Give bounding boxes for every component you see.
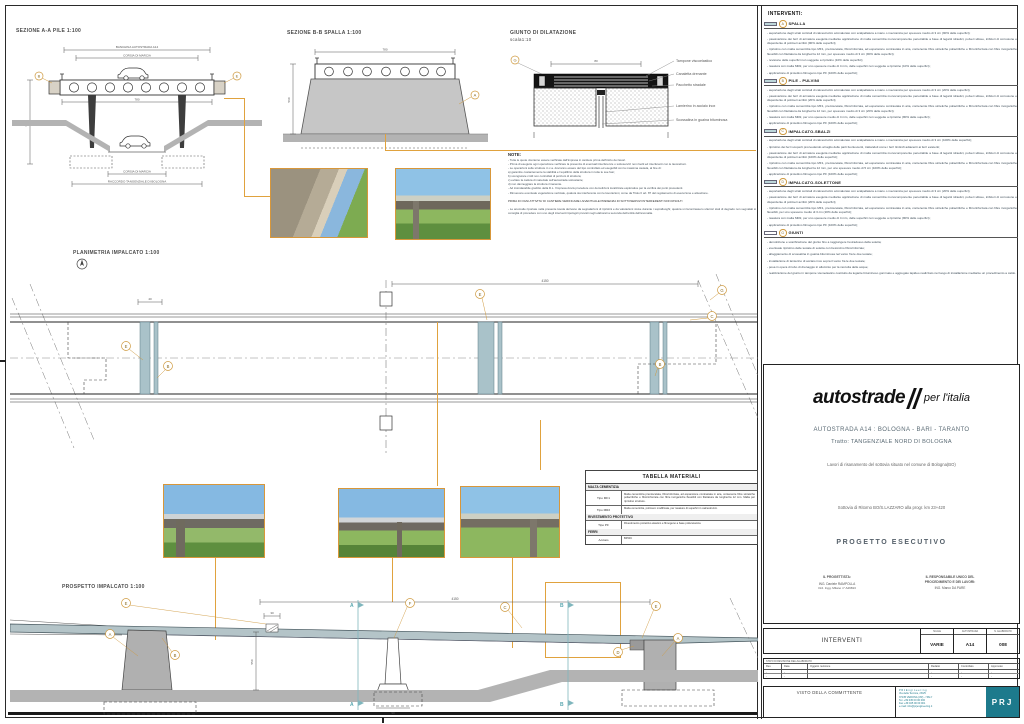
edge-tick-bottom (382, 717, 384, 723)
svg-text:D: D (616, 650, 619, 655)
giunto-label: Scossalina in guaina bituminosa (676, 118, 727, 122)
orange-leader (437, 322, 438, 486)
giunto-drawing: G 80 Tampone viscoelastico Can (506, 46, 756, 148)
giunto-scale: scala1:10 (510, 37, 532, 42)
bullet: - posa in opera di tubo di drenaggio in … (767, 265, 1017, 269)
sezione-bb-title: SEZIONE B-B SPALLA 1:100 (287, 30, 361, 36)
rup-name: ING. Marco DA PARE (895, 586, 1005, 590)
materials-rows: Tipo MF1 Malta cementizia premiscelata, … (586, 491, 757, 514)
orange-leader (224, 98, 244, 99)
materials-group-header: FERRI (586, 529, 757, 536)
material-type: Tipo MF1 (586, 491, 622, 505)
legend-swatch (764, 180, 777, 184)
works-description: Lavori di risanamento del sottovia situa… (764, 462, 1019, 467)
bullet: - rasatura con malta MR2, per uno spesso… (767, 64, 1017, 68)
orange-leader (540, 420, 541, 470)
material-desc: B450C (622, 536, 757, 544)
orange-leader (244, 98, 245, 196)
svg-text:B: B (167, 364, 170, 369)
bullet: - alloggiamento di scossalina in guaina … (767, 252, 1017, 256)
plan-callouts: E B E C B G (122, 286, 727, 379)
drawing-sheet: SEZIONE A-A PILE 1:100 BANCHINA AUTOSTRA… (0, 0, 1024, 724)
car-icon (118, 68, 148, 80)
scale-value: VARIE (921, 635, 953, 653)
interventi-section-spalla: A SPALLA - asportazione degli strati cor… (764, 20, 1018, 75)
giunto-label: Pacchetto stradale (676, 83, 706, 87)
table-row: Tipo PF Rivestimento protettivo elastico… (586, 521, 757, 529)
legend-swatch (764, 22, 777, 26)
materials-rows: Acciaio B450C (586, 536, 757, 544)
table-row: Tipo MR2 Malta cementizia, polimero modi… (586, 506, 757, 514)
giunto-label: Canaletta drenante (676, 72, 707, 76)
svg-text:G: G (513, 58, 516, 63)
bullet: - passivazione dei ferri di armatura ese… (767, 151, 1017, 160)
material-type: Tipo PF (586, 521, 622, 529)
legend-swatch (764, 129, 777, 133)
svg-text:G: G (720, 288, 723, 293)
photo-pier (413, 201, 420, 239)
dim-label: 560 (287, 97, 291, 102)
sheet-id-row: INTERVENTI SCALE VARIE AUTOSTRADA A14 N.… (763, 628, 1020, 654)
bullet: - ripristino con malta cementizia tipo M… (767, 104, 1017, 113)
dim-label: BANCHINA AUTOSTRADA A14 (116, 45, 159, 49)
svg-text:A: A (350, 702, 354, 708)
callout-letter: G (779, 229, 787, 237)
signature-row: VISTO DELLA COMMITTENTE P R J E n g i n … (763, 686, 1020, 718)
bullet: - asportazione degli strati corticali di… (767, 138, 1017, 142)
title-block: autostrade per l'italia AUTOSTRADA A14 :… (763, 364, 1020, 624)
planimetria-title: PLANIMETRIA IMPALCATO 1:100 (73, 250, 160, 256)
revision-rows: - - - - - - - - - - (764, 670, 1019, 678)
bullet: - applicazione di protettivo filmogeno t… (767, 121, 1017, 125)
dim-label: 80 (594, 59, 598, 63)
callout-letter: D (779, 178, 787, 186)
bullet: - realizzazione del giunto in tampone vi… (767, 271, 1017, 275)
revision-table: STATO DI REVISIONE DELL'ELABORATO Rev. D… (763, 658, 1020, 679)
material-desc: Malta cementizia, polimero modificata, p… (622, 506, 757, 514)
giunto-title: GIUNTO DI DILATAZIONE (510, 30, 576, 36)
dim-label: 780 (134, 98, 139, 102)
bullet: - passivazione dei ferri di armatura ese… (767, 195, 1017, 204)
photo-pier (397, 522, 402, 557)
dim-label: 90 (391, 711, 395, 715)
svg-text:B: B (174, 653, 177, 658)
photo-elevation-mid (338, 488, 445, 558)
orange-leader (385, 134, 386, 151)
section-title: IMPALCATO-SOLETTONE (789, 180, 842, 185)
section-title: IMPALCATO-SBALZI (789, 129, 831, 134)
svg-text:B: B (659, 362, 662, 367)
sheet-name: INTERVENTI (763, 628, 921, 654)
scale-cell: SCALE VARIE (921, 628, 954, 654)
note-block: NOTE: - Tutte le quote dovranno essere v… (508, 152, 756, 215)
svg-text:A: A (677, 636, 680, 641)
giunto-label: Tampone viscoelastico (676, 59, 712, 63)
note-footer: - Le anomalie riportate nella presente t… (508, 207, 756, 215)
photo-elevation-right (460, 486, 560, 558)
subject-line: Sottovia di Ritorno BO/S.LAZZARO alla pr… (764, 505, 1019, 510)
planimetria-drawing: 4150 40 E B (10, 268, 758, 466)
material-type: Tipo MR2 (586, 506, 622, 514)
section-bullets: - demolizione e scarificazione del giunt… (764, 240, 1018, 276)
section-bullets: - asportazione degli strati corticali di… (764, 88, 1018, 126)
car-icon (120, 136, 150, 148)
bullet: - asportazione degli strati corticali di… (767, 31, 1017, 35)
callout-letter: A (779, 20, 787, 28)
bullet: - ripristino con malta cementizia tipo M… (767, 161, 1017, 170)
bullet: - eventuale ripristino delle testate di … (767, 246, 1017, 250)
callout-letter: C (779, 128, 787, 136)
section-title: SPALLA (789, 21, 806, 26)
dim-label: 40 (148, 297, 152, 301)
bullet: - applicazione di protettivo filmogeno t… (767, 223, 1017, 227)
material-desc: Rivestimento protettivo elastico e filmo… (622, 521, 757, 529)
dim-label: 550 (250, 659, 254, 664)
bullet: - revisione delle superfici non soggette… (767, 58, 1017, 62)
note-lines: - Tutte le quote dovranno essere verific… (508, 158, 756, 195)
note-title: NOTE: (508, 152, 756, 157)
section-marker-b: B B (560, 600, 574, 710)
logo-subtitle: per l'italia (924, 392, 970, 404)
prj-info-line: e-mail: info@prjengineering.it (899, 705, 983, 708)
table-row: Tipo MF1 Malta cementizia premiscelata, … (586, 491, 757, 506)
sheet-number-cell: N. ELABORATO 008 (987, 628, 1020, 654)
interventi-section-giunti: G GIUNTI - demolizione e scarificazione … (764, 229, 1018, 275)
prospetto-drawing: 4150 30 550 90 (10, 594, 758, 716)
photo-bridge-side (395, 168, 491, 240)
section-bullets: - asportazione degli strati corticali di… (764, 31, 1018, 76)
prospetto-title: PROSPETTO IMPALCATO 1:100 (62, 584, 145, 590)
section-bullets: - asportazione degli strati corticali di… (764, 138, 1018, 176)
svg-text:F: F (409, 601, 412, 606)
rup-title-line2: PROCEDIMENTO E DEI LAVORI: (895, 580, 1005, 585)
logo-wordmark: autostrade (813, 387, 905, 409)
dim-label: CORSIA DI MARCIA (123, 54, 151, 58)
materials-group-header: RIVESTIMENTO PROTETTIVO (586, 514, 757, 521)
interventi-panel: INTERVENTI: A SPALLA - asportazione degl… (764, 9, 1018, 361)
svg-text:E: E (125, 344, 128, 349)
giunto-label: Lamierino in acciaio inox (676, 104, 716, 108)
project-phase: PROGETTO ESECUTIVO (764, 539, 1019, 546)
prj-logo: PRJ (986, 687, 1019, 717)
callout-e-right: E (224, 72, 241, 83)
interventi-section-pile: B PILE - PULVINI - asportazione degli st… (764, 77, 1018, 126)
photo-underside-closeup (270, 168, 368, 238)
road-cell: AUTOSTRADA A14 (954, 628, 987, 654)
bullet: - rasatura con malta MR2, per uno spesso… (767, 115, 1017, 119)
sezione-aa-title: SEZIONE A-A PILE 1:100 (16, 28, 81, 34)
dim-label: 30 (270, 611, 274, 615)
note-line: - Rimuovere eventuale vegetazione vertic… (508, 191, 756, 195)
road-value: A14 (954, 635, 986, 653)
photo-elevation-left (163, 484, 265, 558)
bullet: - passivazione dei ferri di armatura ese… (767, 37, 1017, 46)
svg-text:E: E (236, 74, 239, 79)
bottom-title-block: INTERVENTI SCALE VARIE AUTOSTRADA A14 N.… (763, 628, 1020, 718)
materials-table-title: TABELLA MATERIALI (586, 471, 757, 484)
prj-company-info: P R J E n g i n e e r i n gVia della Tec… (896, 687, 986, 717)
bullet: - passivazione dei ferri di armatura ese… (767, 94, 1017, 103)
bullet: - ripristino con malta cementizia tipo M… (767, 206, 1017, 215)
designer-signature: IL PROGETTISTA: ING. Daniele RAMPOLLA Or… (782, 575, 892, 590)
material-type: Acciaio (586, 536, 622, 544)
svg-text:A: A (350, 603, 354, 609)
sheet-number-value: 008 (987, 635, 1019, 653)
svg-text:C: C (710, 314, 713, 319)
section-bullets: - asportazione degli strati corticali di… (764, 189, 1018, 227)
interventi-section-sbalzi: C IMPALCATO-SBALZI - asportazione degli … (764, 128, 1018, 177)
svg-text:B: B (560, 702, 564, 708)
interventi-title: INTERVENTI: (768, 11, 1018, 17)
bullet: - applicazione di protettivo filmogeno t… (767, 71, 1017, 75)
materials-rows: Tipo PF Rivestimento protettivo elastico… (586, 521, 757, 529)
callout-g: G (511, 56, 546, 76)
materials-table: TABELLA MATERIALI MALTA CEMENTIZIA Tipo … (585, 470, 758, 545)
bullet: - installazione di lamierino di acciaio … (767, 259, 1017, 263)
svg-text:B: B (560, 603, 564, 609)
edge-tick-left (0, 360, 6, 362)
road-title: AUTOSTRADA A14 : BOLOGNA - BARI - TARANT… (764, 427, 1019, 433)
bullet: - asportazione degli strati corticali di… (767, 88, 1017, 92)
table-row: Acciaio B450C (586, 536, 757, 544)
bullet: - demolizione e scarificazione del giunt… (767, 240, 1017, 244)
interventi-section-solettone: D IMPALCATO-SOLETTONE - asportazione deg… (764, 178, 1018, 227)
revision-row: - - - - - (764, 674, 1019, 678)
visto-cell: VISTO DELLA COMMITTENTE (764, 687, 896, 717)
svg-text:E: E (125, 601, 128, 606)
svg-text:A: A (109, 632, 112, 637)
photo-pier (176, 519, 185, 557)
svg-text:A: A (474, 93, 477, 98)
callout-letter: B (779, 77, 787, 85)
dim-label: 4150 (541, 279, 548, 283)
bullet: - ripristino con malta cementizia tipo M… (767, 47, 1017, 56)
rup-signature: IL RESPONSABILE UNICO DEL PROCEDIMENTO E… (895, 575, 1005, 590)
logo-slashes-icon (910, 388, 919, 409)
autostrade-logo: autostrade per l'italia (764, 387, 1019, 409)
note-warning: PRIMA DI OGNI ATTIVITA' DI CANTIERE VERI… (508, 199, 756, 203)
svg-text:E: E (655, 604, 658, 609)
section-title: PILE - PULVINI (789, 78, 820, 83)
photo-pier (530, 519, 538, 557)
designer-title: IL PROGETTISTA: (782, 575, 892, 580)
materials-group-header: MALTA CEMENTIZIA (586, 484, 757, 491)
svg-text:B: B (38, 74, 41, 79)
svg-text:E: E (479, 292, 482, 297)
section-title: GIUNTI (789, 230, 804, 235)
dim-label: 4150 (451, 597, 458, 601)
legend-swatch (764, 231, 777, 235)
designer-registration: Ord. Ingg. Milano n° A29813 (782, 586, 892, 590)
dim-label: CORSIA DI MARCIA (123, 170, 151, 174)
dim-label: 780 (382, 48, 387, 52)
dim-label: RACCORDO TANGENZIALE DI BOLOGNA (108, 180, 166, 184)
bullet: - applicazione di protettivo filmogeno t… (767, 172, 1017, 176)
bullet: - ripristino dei ferri scoperti provvede… (767, 145, 1017, 149)
panel-divider-line-2 (761, 5, 762, 719)
bullet: - rasatura con malta MR2, per uno spesso… (767, 216, 1017, 220)
sezione-aa-drawing: BANCHINA AUTOSTRADA A14 CORSIA DI MARCIA… (12, 36, 262, 196)
svg-text:C: C (503, 605, 506, 610)
orange-leader (244, 196, 270, 197)
orange-leader (385, 150, 756, 151)
material-desc: Malta cementizia premiscelata, fibrorinf… (622, 491, 757, 505)
road-tratto: Tratto: TANGENZIALE NORD DI BOLOGNA (764, 439, 1019, 445)
bullet: - asportazione degli strati corticali di… (767, 189, 1017, 193)
legend-swatch (764, 79, 777, 83)
